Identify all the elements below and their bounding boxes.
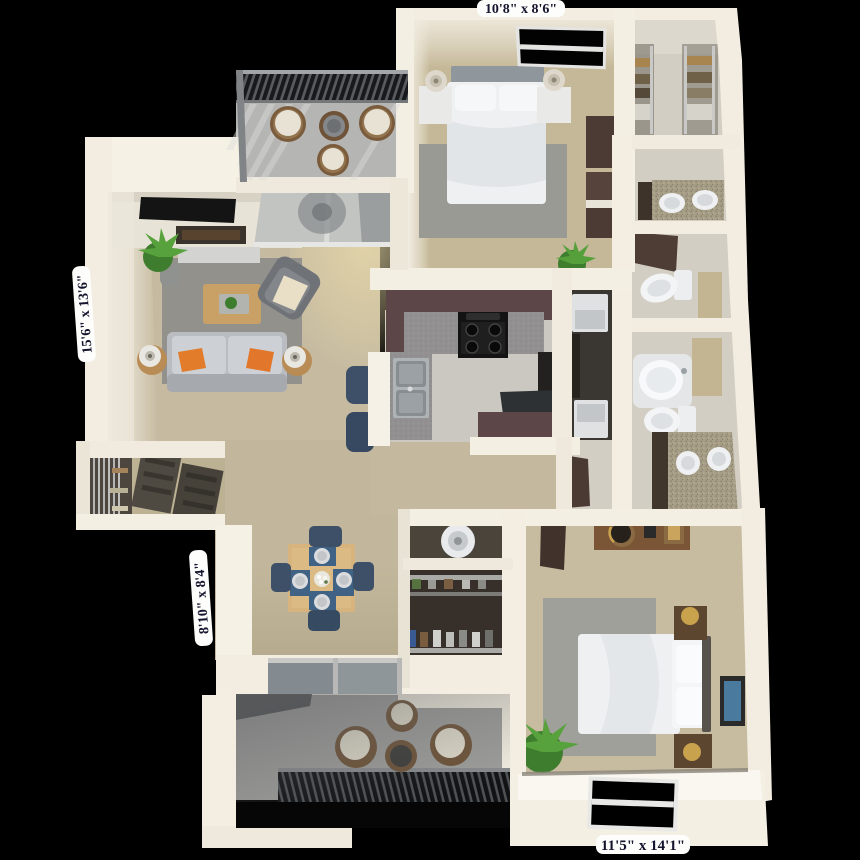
svg-text:10'8" x 8'6": 10'8" x 8'6": [485, 2, 557, 17]
svg-text:11'5" x 14'1": 11'5" x 14'1": [601, 838, 685, 854]
